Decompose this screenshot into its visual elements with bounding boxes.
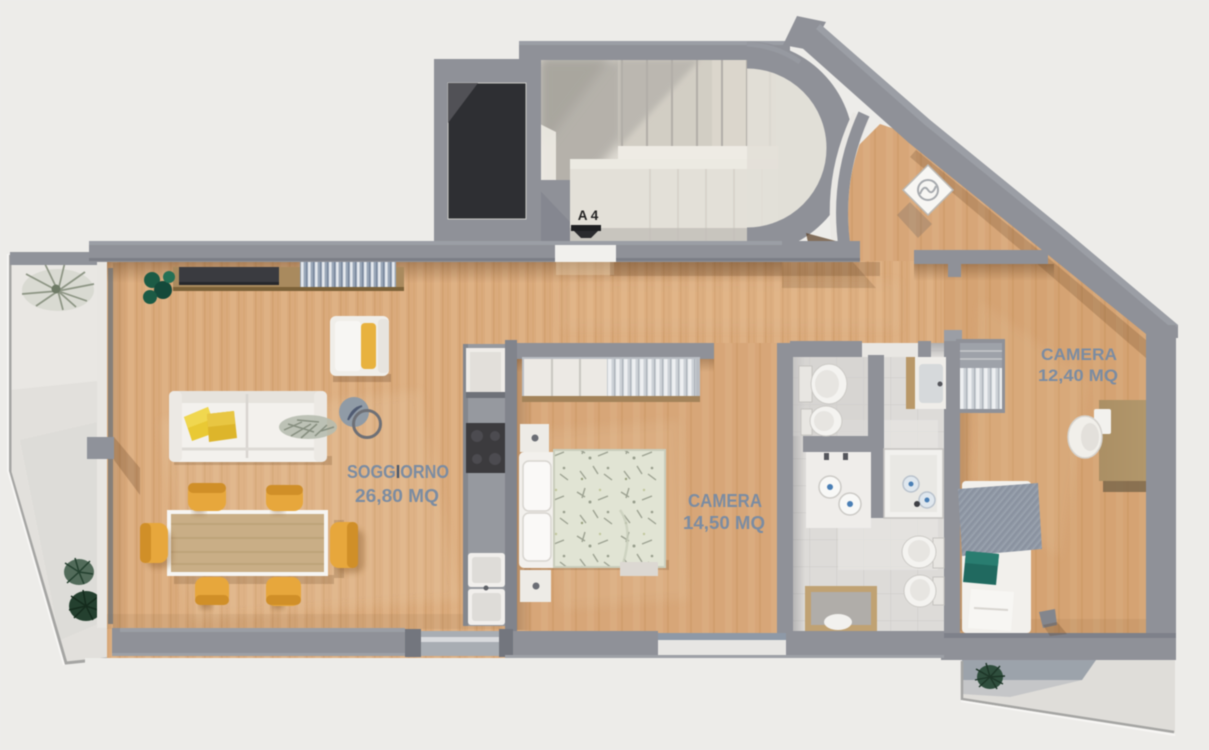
svg-text:SOGGIORNO: SOGGIORNO [347, 461, 449, 482]
svg-text:CAMERA: CAMERA [1041, 345, 1117, 364]
svg-text:CAMERA: CAMERA [688, 490, 762, 511]
svg-text:14,50 MQ: 14,50 MQ [683, 512, 765, 533]
svg-text:A 4: A 4 [578, 208, 599, 223]
svg-text:26,80 MQ: 26,80 MQ [355, 485, 439, 506]
svg-text:12,40 MQ: 12,40 MQ [1038, 366, 1118, 385]
